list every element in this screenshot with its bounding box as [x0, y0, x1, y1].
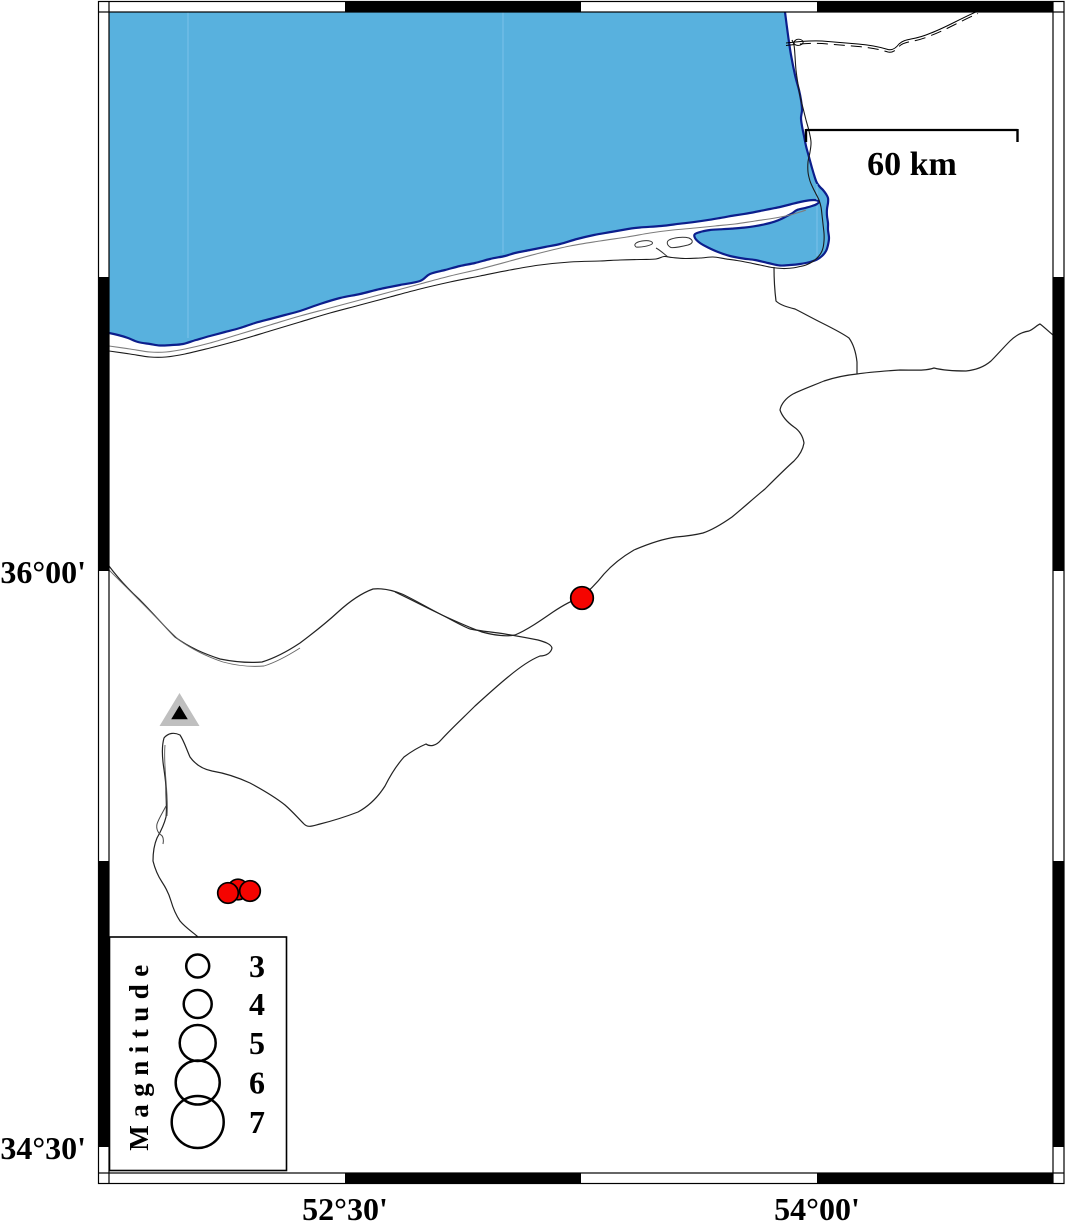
svg-text:54°00': 54°00'	[774, 1191, 860, 1222]
svg-text:34°30': 34°30'	[0, 1130, 86, 1166]
svg-text:6: 6	[249, 1065, 265, 1101]
svg-text:5: 5	[249, 1025, 265, 1061]
svg-text:52°30': 52°30'	[302, 1191, 388, 1222]
svg-text:4: 4	[249, 986, 265, 1022]
svg-text:Magnitude: Magnitude	[124, 957, 154, 1151]
svg-text:7: 7	[249, 1104, 265, 1140]
svg-text:60 km: 60 km	[867, 146, 957, 183]
svg-text:3: 3	[249, 948, 265, 984]
svg-text:36°00': 36°00'	[0, 554, 86, 590]
